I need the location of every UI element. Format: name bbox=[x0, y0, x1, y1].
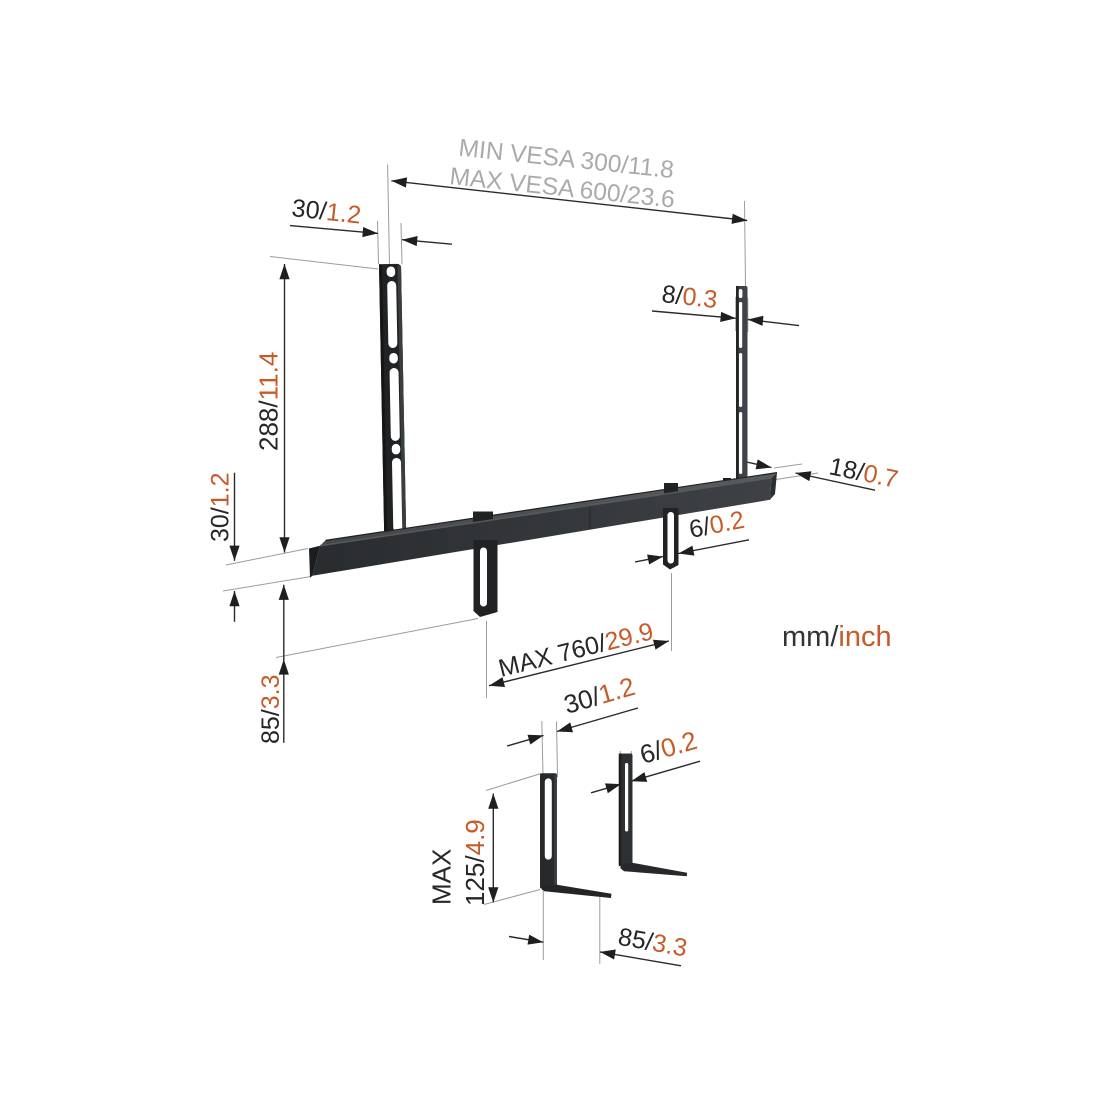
svg-text:mm/inch: mm/inch bbox=[782, 621, 892, 653]
svg-text:30/1.2: 30/1.2 bbox=[207, 472, 235, 542]
svg-text:125/4.9: 125/4.9 bbox=[460, 819, 490, 906]
svg-text:288/11.4: 288/11.4 bbox=[254, 352, 284, 451]
svg-text:MAX: MAX bbox=[427, 849, 457, 905]
svg-text:85/3.3: 85/3.3 bbox=[257, 674, 285, 744]
